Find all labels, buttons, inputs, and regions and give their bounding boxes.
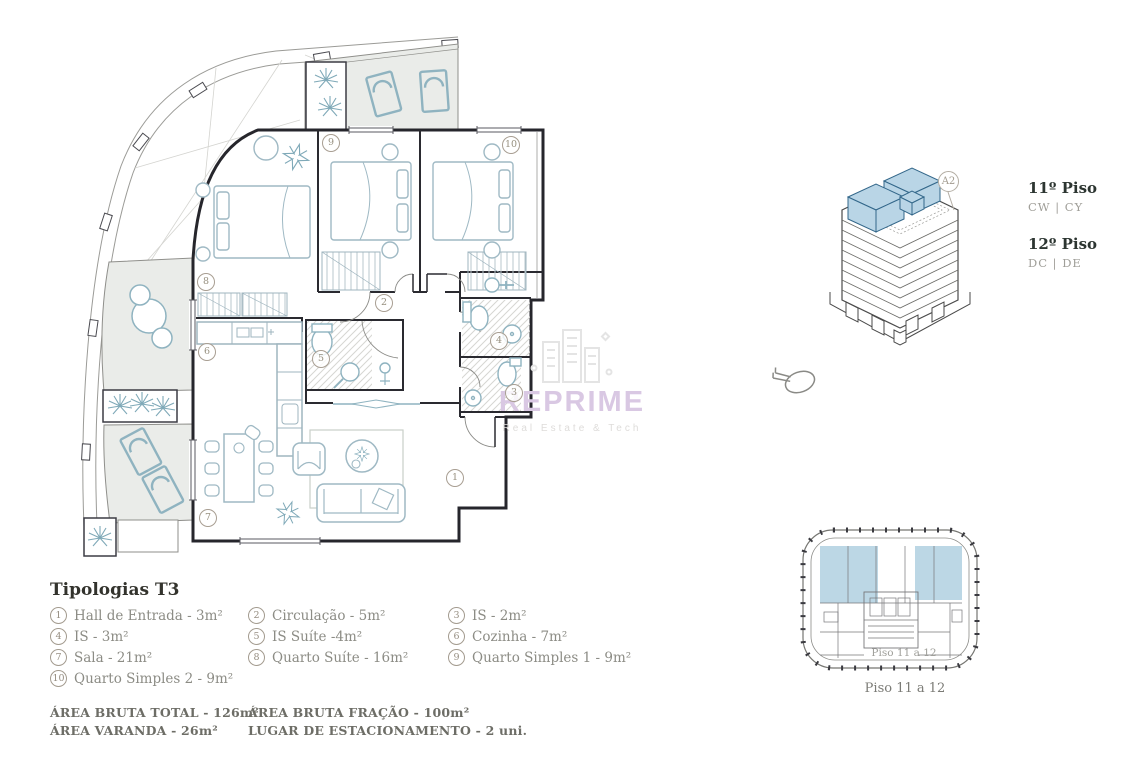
round-rug	[346, 440, 378, 472]
armchair	[293, 443, 325, 475]
sofa	[317, 484, 405, 522]
legend-item: 5IS Suíte -4m²	[248, 628, 362, 645]
legend-item: 8Quarto Suíte - 16m²	[248, 649, 408, 666]
keyplan-inner-label: Piso 11 a 12	[856, 647, 952, 659]
legend-item-number: 7	[50, 649, 67, 666]
faucet-icon	[485, 278, 499, 292]
legend-item-label: Circulação - 5m²	[272, 608, 385, 624]
room-badge-5: 5	[312, 350, 330, 368]
legend-item-label: IS Suíte -4m²	[272, 629, 362, 645]
legend-item: 3IS - 2m²	[448, 607, 527, 624]
floor-labels: 11º Piso CW | CY 12º Piso DC | DE	[1028, 179, 1097, 270]
floor-title: 12º Piso	[1028, 235, 1097, 253]
left-balconies	[84, 258, 193, 556]
room-badge-3: 3	[505, 384, 523, 402]
floorplan-sheet: REPRIME Real Estate & Tech 1 2 3 4 5 6 7…	[0, 0, 1122, 757]
floor-codes: DC | DE	[1028, 256, 1097, 270]
legend-item-label: Sala - 21m²	[74, 650, 152, 666]
legend-item: 6Cozinha - 7m²	[448, 628, 567, 645]
legend-item-number: 9	[448, 649, 465, 666]
legend-item-number: 8	[248, 649, 265, 666]
keyplan-caption: Piso 11 a 12	[843, 681, 967, 696]
legend-item-label: IS - 2m²	[472, 608, 527, 624]
legend-item: 10Quarto Simples 2 - 9m²	[50, 670, 233, 687]
legend-item: 9Quarto Simples 1 - 9m²	[448, 649, 631, 666]
legend-total: ÁREA BRUTA FRAÇÃO - 100m²	[248, 705, 469, 720]
highlighted-unit	[915, 546, 962, 600]
legend-item-number: 5	[248, 628, 265, 645]
room-badge-4: 4	[490, 332, 508, 350]
legend-item-label: Quarto Simples 2 - 9m²	[74, 671, 233, 687]
room-badge-2: 2	[375, 294, 393, 312]
legend-item: 7Sala - 21m²	[50, 649, 152, 666]
legend-item: 2Circulação - 5m²	[248, 607, 385, 624]
legend-title: Tipologias T3	[50, 580, 179, 600]
legend-item-label: Quarto Simples 1 - 9m²	[472, 650, 631, 666]
room-badge-7: 7	[199, 509, 217, 527]
legend-item: 1Hall de Entrada - 3m²	[50, 607, 223, 624]
room-badge-8: 8	[197, 273, 215, 291]
legend-item-label: Cozinha - 7m²	[472, 629, 567, 645]
apartment	[189, 126, 543, 545]
legend-item-label: Quarto Suíte - 16m²	[272, 650, 408, 666]
room-badge-6: 6	[198, 343, 216, 361]
room-badge-10: 10	[502, 136, 520, 154]
legend-item: 4IS - 3m²	[50, 628, 129, 645]
building-isometric	[830, 168, 970, 345]
compass-icon	[770, 356, 818, 399]
room-badge-1: 1	[446, 469, 464, 487]
legend-item-label: IS - 3m²	[74, 629, 129, 645]
legend-item-number: 2	[248, 607, 265, 624]
legend-item-number: 3	[448, 607, 465, 624]
floor-codes: CW | CY	[1028, 200, 1097, 214]
legend-item-number: 1	[50, 607, 67, 624]
legend-total: ÁREA BRUTA TOTAL - 126m²	[50, 705, 259, 720]
legend-total: ÁREA VARANDA - 26m²	[50, 723, 218, 738]
legend-item-number: 6	[448, 628, 465, 645]
highlighted-unit	[820, 546, 878, 603]
legend-item-number: 4	[50, 628, 67, 645]
legend-item-number: 10	[50, 670, 67, 687]
room-badge-9: 9	[322, 134, 340, 152]
legend-item-label: Hall de Entrada - 3m²	[74, 608, 223, 624]
unit-badge-a2: A2	[938, 171, 959, 192]
legend-total: LUGAR DE ESTACIONAMENTO - 2 uni.	[248, 723, 527, 738]
floor-title: 11º Piso	[1028, 179, 1097, 197]
